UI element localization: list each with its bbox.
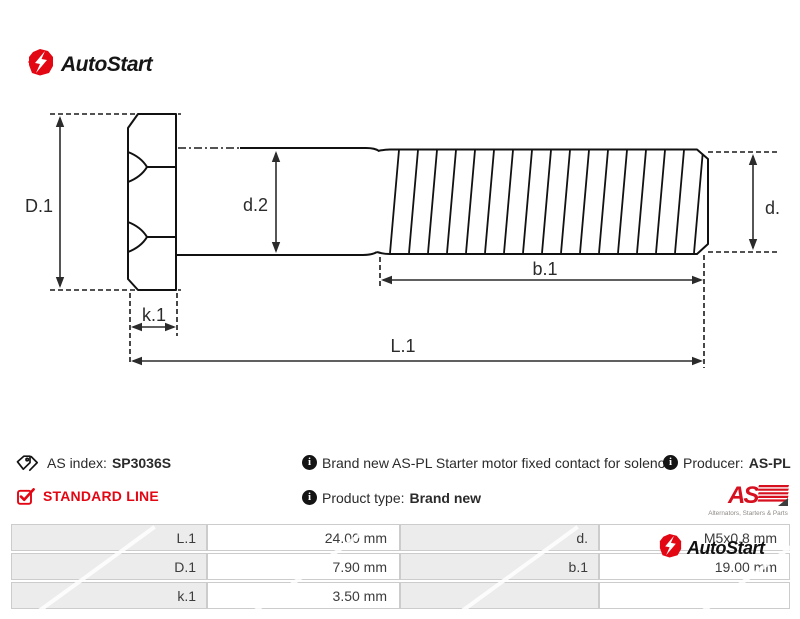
spec-label: b.1 (400, 553, 599, 580)
spec-value (599, 582, 790, 609)
dim-label-d: d. (765, 198, 780, 218)
bolt-shank (177, 148, 379, 255)
product-type-value: Brand new (410, 490, 482, 506)
description-item: i Brand new AS-PL Starter motor fixed co… (302, 455, 676, 472)
spec-label: k.1 (11, 582, 207, 609)
aspl-logo: AS Alternators, Starters & Parts (704, 482, 792, 518)
spec-value: 3.50 mm (207, 582, 400, 609)
spec-label (400, 582, 599, 609)
red-checkbox-icon (17, 488, 35, 508)
producer-value: AS-PL (749, 455, 791, 471)
product-description: Brand new AS-PL Starter motor fixed cont… (322, 455, 676, 472)
aspl-logo-text: AS (727, 482, 759, 509)
autostart-logo-text: AutoStart (61, 53, 152, 77)
producer-label: Producer: (683, 455, 744, 471)
spec-value: 24.00 mm (207, 524, 400, 551)
technical-drawing: D.1 d.2 d. k.1 b.1 L.1 (0, 100, 800, 385)
product-type-item: i Product type:Brand new (302, 490, 481, 507)
as-index-item: AS index:SP3036S (16, 455, 171, 475)
dim-label-k1: k.1 (142, 305, 166, 325)
tags-icon (16, 455, 39, 475)
info-icon: i (663, 455, 678, 470)
standard-line-badge: STANDARD LINE (43, 488, 159, 505)
autostart-logo: AutoStart (28, 48, 152, 81)
dim-label-D1: D.1 (25, 196, 53, 216)
product-type-label: Product type: (322, 490, 405, 506)
autostart-watermark-text: AutoStart (687, 538, 765, 559)
producer-item: i Producer:AS-PL (663, 455, 791, 472)
bolt-diagram: D.1 d.2 d. k.1 b.1 L.1 (0, 100, 800, 385)
autostart-gear-bolt-icon (659, 533, 682, 563)
spec-value: 7.90 mm (207, 553, 400, 580)
spec-label: d. (400, 524, 599, 551)
dim-label-b1: b.1 (532, 259, 557, 279)
autostart-gear-bolt-icon (28, 48, 54, 81)
thread-hatching (390, 150, 703, 253)
dim-label-d2: d.2 (243, 195, 268, 215)
spec-label: D.1 (11, 553, 207, 580)
aspl-logo-subtext: Alternators, Starters & Parts (708, 510, 788, 517)
autostart-watermark-logo: AutoStart (659, 533, 765, 563)
as-index-value: SP3036S (112, 455, 171, 471)
bolt-head (128, 114, 176, 290)
aspl-logo-stripes (758, 485, 789, 502)
dim-label-L1: L.1 (390, 336, 415, 356)
bolt-thread (377, 150, 708, 255)
spec-label: L.1 (11, 524, 207, 551)
info-icon: i (302, 490, 317, 505)
standard-line-item: STANDARD LINE (17, 488, 159, 508)
info-icon: i (302, 455, 317, 470)
as-index-label: AS index: (47, 455, 107, 471)
